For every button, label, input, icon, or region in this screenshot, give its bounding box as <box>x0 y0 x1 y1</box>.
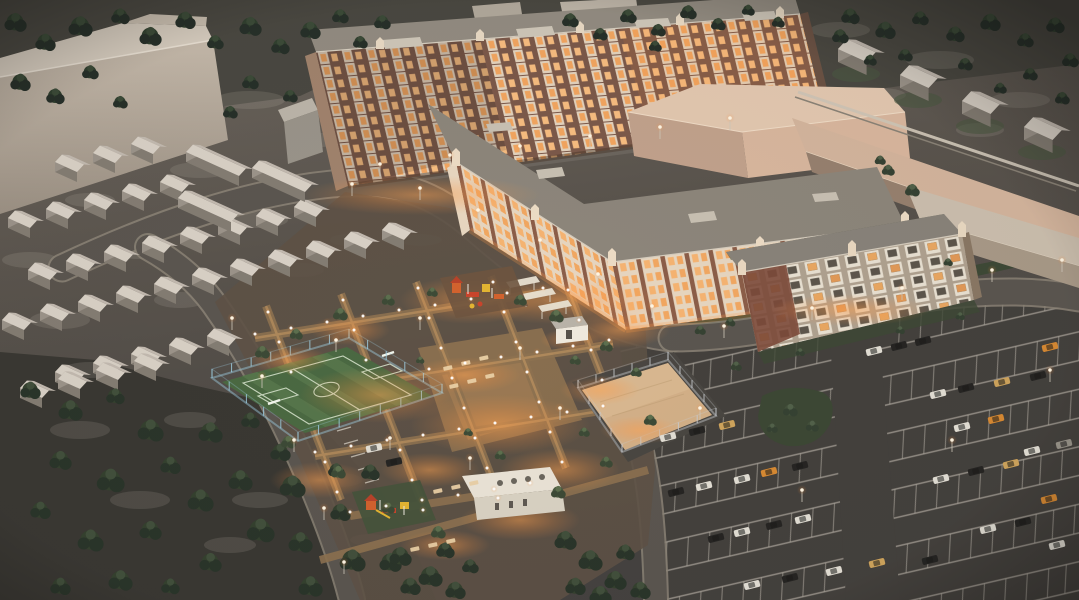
vignette <box>0 0 1079 600</box>
render-canvas <box>0 0 1079 600</box>
site-render <box>0 0 1079 600</box>
